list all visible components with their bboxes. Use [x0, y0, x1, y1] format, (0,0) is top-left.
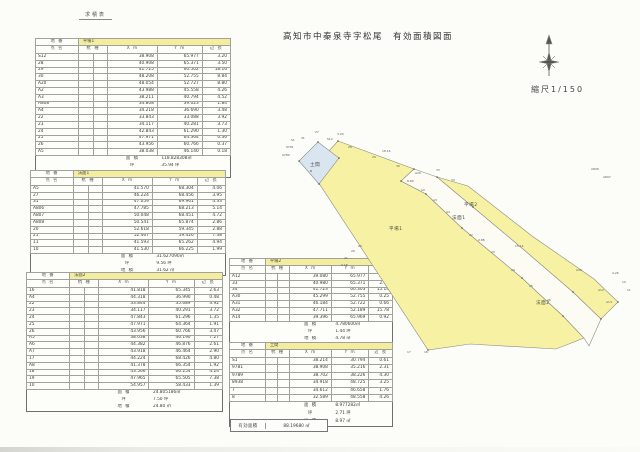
map-label: A2: [421, 188, 425, 192]
map-label: A12: [598, 288, 604, 292]
map-label: 0.18: [341, 263, 348, 267]
north-arrow-icon: [539, 35, 559, 76]
map-label: 25: [529, 284, 533, 288]
map-label: 23: [491, 250, 495, 254]
map-label: A3: [433, 198, 437, 202]
map-label: 3.20: [337, 132, 344, 136]
map-label: A5: [358, 244, 362, 248]
map-label: 4.26: [612, 271, 619, 275]
survey-sheet: 求積表 高知市中秦泉寺字松尾 有効面積図面 縮尺1/150 地 番 平場1 点 …: [0, 0, 640, 452]
map-label: 法面1: [452, 214, 466, 221]
map-label: 土間: [310, 161, 320, 168]
map-label: 21: [344, 256, 348, 260]
map-label: S1: [291, 138, 295, 142]
map-label: 30: [396, 164, 400, 168]
map-label: 34: [451, 178, 455, 182]
map-label: 27: [315, 130, 319, 134]
map-label: 10: [622, 280, 626, 284]
map-label: 26: [547, 298, 551, 302]
map-label: 28: [348, 145, 352, 149]
map-label: 29: [372, 155, 376, 159]
map-label: 20: [351, 249, 355, 253]
map-label: 8.84: [407, 179, 414, 183]
map-label: A4: [446, 210, 450, 214]
map-label: A30: [576, 268, 582, 272]
map-label: A806: [591, 167, 599, 171]
map-label: 平場2: [464, 201, 478, 208]
map-label: 31: [301, 136, 305, 140]
map-label: 9781: [286, 145, 294, 149]
map-label: 15.14: [515, 244, 524, 248]
map-label: 9789: [282, 153, 290, 157]
map-label: 33: [436, 168, 440, 172]
map-label: A20: [415, 171, 421, 175]
map-label: 11: [627, 288, 631, 292]
map-label: A807: [603, 175, 611, 179]
map-label: 18.16: [382, 149, 391, 153]
scan-edge-artifact: [0, 447, 640, 452]
map-label: A14: [606, 300, 612, 304]
map-label: 2.88: [478, 238, 485, 242]
map-label: 17: [407, 350, 411, 354]
map-label: 平場1: [389, 225, 403, 232]
parcel-map: 土間平場1法面1平場2法面2S12282930A203.2018.168.84A…: [0, 0, 640, 452]
map-label: S12: [327, 137, 333, 141]
map-label: 24: [511, 268, 515, 272]
map-label: 22: [469, 233, 473, 237]
map-label: 18: [424, 350, 428, 354]
